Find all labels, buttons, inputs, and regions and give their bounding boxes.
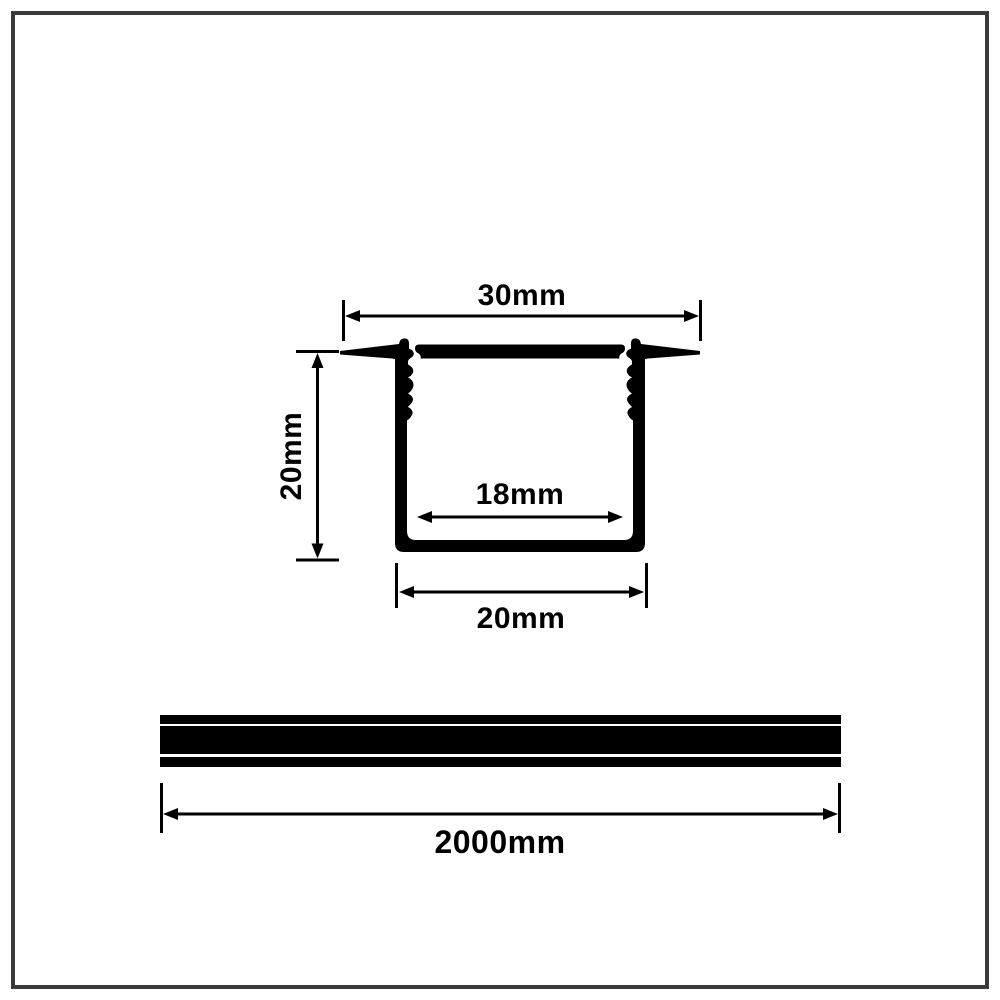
technical-drawing: 30mm 20mm 18mm 20mm (0, 0, 1000, 1000)
height-label: 20mm (275, 412, 308, 501)
arrowhead-left (417, 511, 432, 523)
dimension-top-width: 30mm (344, 279, 701, 341)
top-width-label: 30mm (478, 279, 567, 312)
profile-length-view (160, 715, 841, 767)
profile-cover-bar (415, 345, 625, 359)
bar-body (160, 726, 841, 754)
bar-bottom-edge (160, 757, 841, 767)
arrowhead-left (163, 808, 178, 820)
arrowhead-left (345, 310, 360, 322)
arrowhead-left (399, 586, 414, 598)
length-label: 2000mm (434, 824, 565, 860)
dimension-inner-width: 18mm (417, 478, 623, 523)
drawing-canvas: 30mm 20mm 18mm 20mm (0, 0, 1000, 1000)
arrowhead-right (684, 310, 699, 322)
inner-width-label: 18mm (476, 478, 565, 511)
bottom-width-label: 20mm (477, 602, 566, 635)
arrowhead-right (823, 808, 838, 820)
arrowhead-up (312, 353, 324, 368)
arrowhead-down (312, 544, 324, 559)
profile-cross-section (340, 339, 700, 553)
dimension-height: 20mm (275, 352, 339, 561)
profile-body-shape (340, 339, 700, 553)
bar-top-edge (160, 715, 841, 724)
arrowhead-right (608, 511, 623, 523)
dimension-bottom-width: 20mm (397, 563, 647, 635)
dimension-length: 2000mm (162, 783, 840, 860)
arrowhead-right (629, 586, 644, 598)
